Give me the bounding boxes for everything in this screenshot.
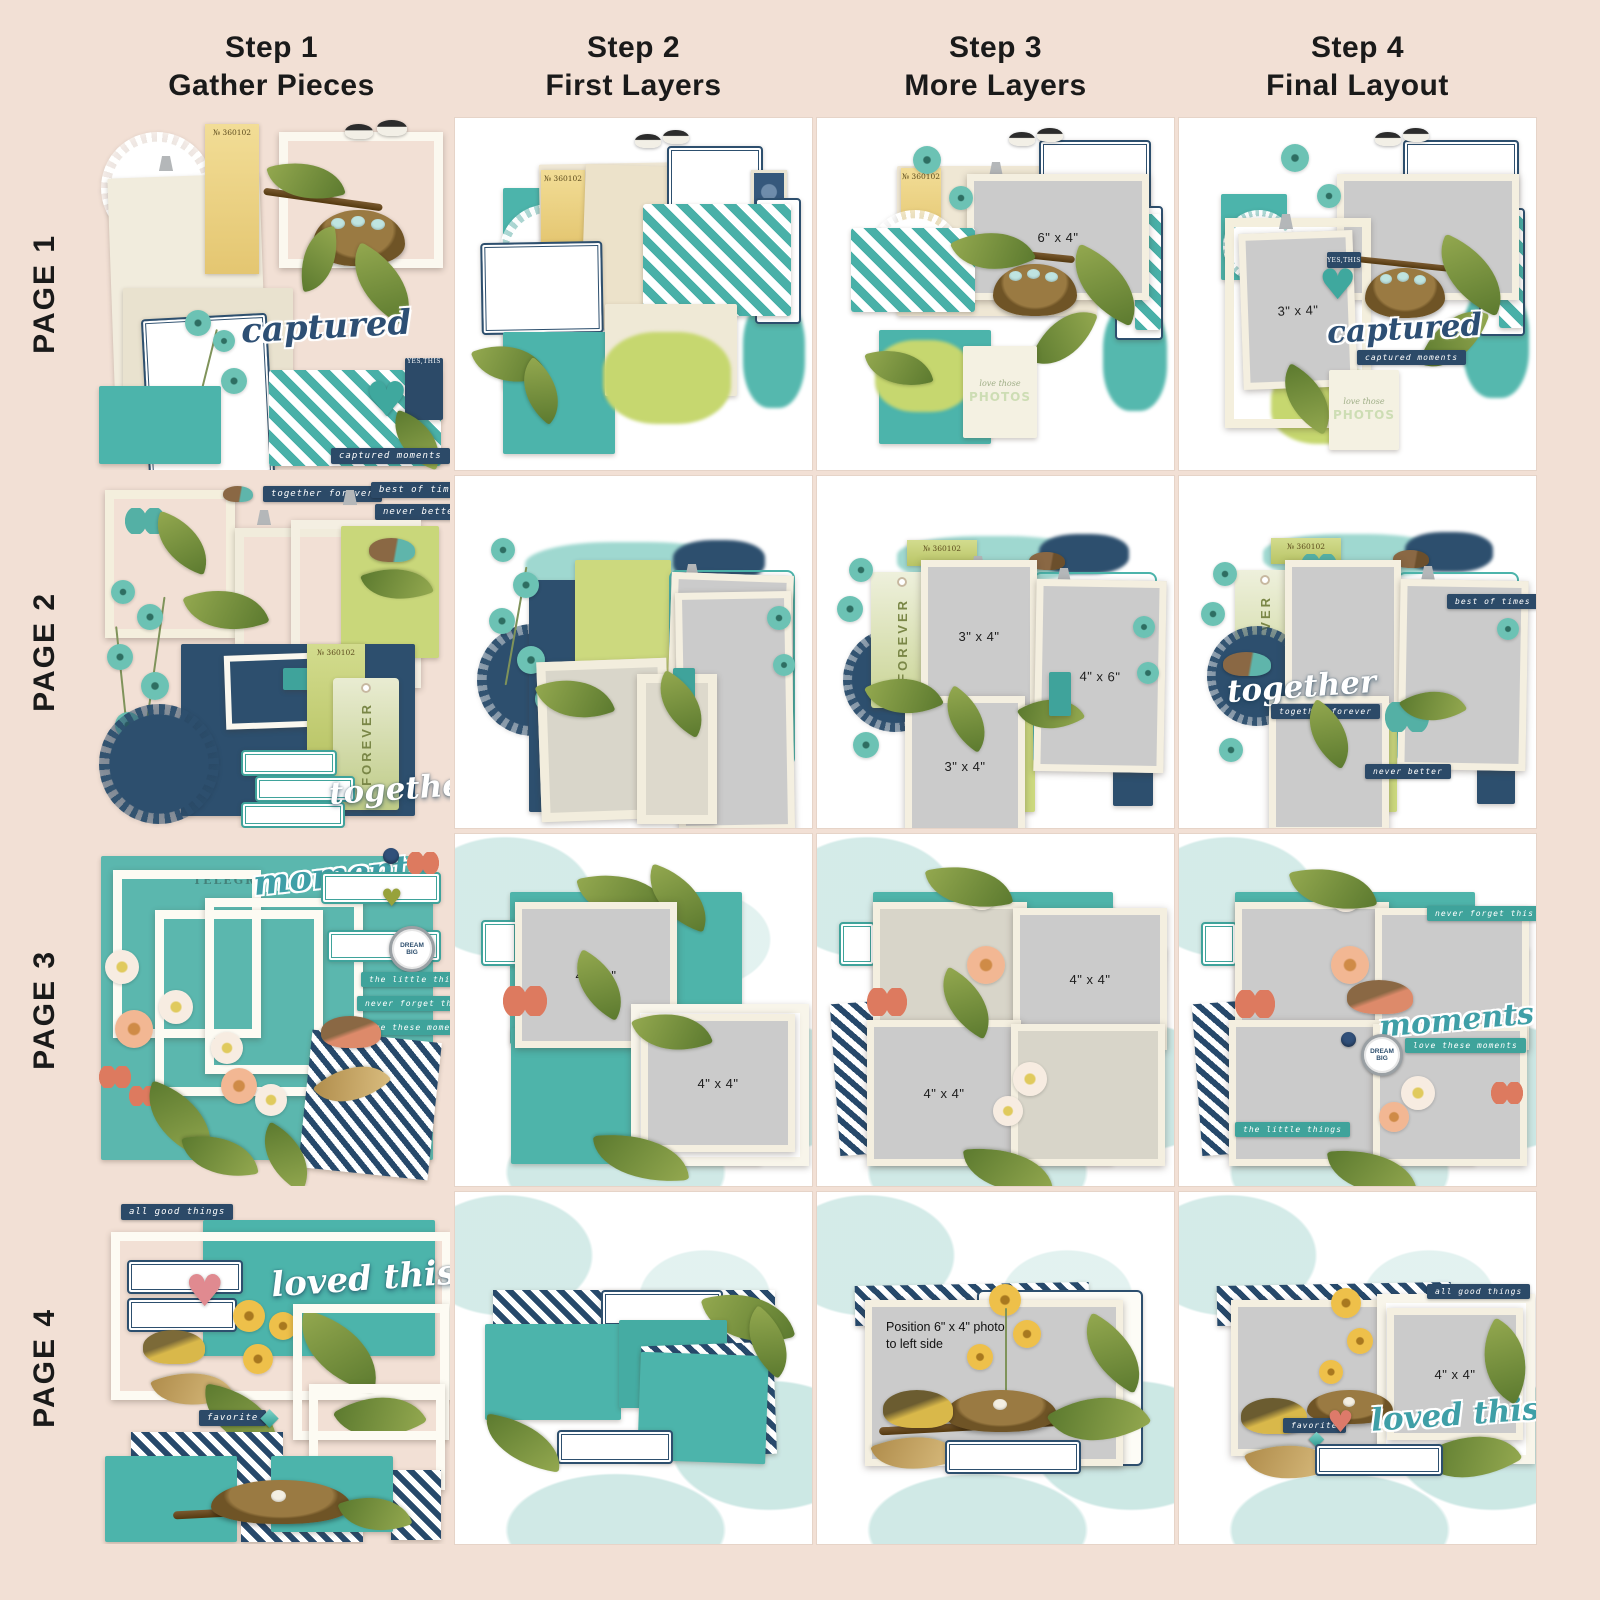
page2-step2-preview	[455, 476, 812, 828]
yellow-flower	[967, 1344, 993, 1370]
teal-poppy	[1201, 602, 1225, 626]
label-chip: love these moments	[1405, 1038, 1526, 1053]
nest-egg	[1397, 272, 1409, 282]
nest-egg	[271, 1490, 286, 1502]
teal-poppy	[513, 572, 539, 598]
songbird	[223, 486, 253, 502]
word-art-captured: captured	[1326, 310, 1483, 349]
row-label-page1: PAGE 1	[2, 118, 88, 470]
white-flower	[105, 950, 139, 984]
teal-poppy	[1133, 616, 1155, 638]
page1-step2-preview: № 360102	[455, 118, 812, 470]
page4-step4-preview: 4" x 4" all good things favorite ♥ loved…	[1179, 1192, 1536, 1544]
teal-flower	[1317, 184, 1341, 208]
heart-teal: ♥	[1319, 264, 1357, 306]
label-chip: never forget this	[1427, 906, 1536, 921]
step-number: Step 3	[949, 29, 1042, 67]
paper-teal	[99, 386, 221, 464]
column-header-step2: Step 2 First Layers	[455, 0, 812, 112]
yellow-flower	[1347, 1328, 1373, 1354]
teal-flower	[213, 330, 235, 352]
chickadee-bird	[1403, 128, 1429, 142]
leaf-accent	[480, 1413, 567, 1472]
column-header-step1: Step 1 Gather Pieces	[93, 0, 450, 112]
label-chip: never better	[1365, 764, 1451, 779]
teal-poppy	[767, 606, 791, 630]
page4-step1-preview: all good things ♥ loved this favorite	[93, 1192, 450, 1544]
white-flower	[993, 1096, 1023, 1126]
label-chip: the little things	[361, 972, 450, 987]
dream-big-charm: DREAM BIG	[1361, 1034, 1403, 1076]
teal-poppy	[111, 580, 135, 604]
step-title: Final Layout	[1266, 67, 1449, 105]
step-number: Step 4	[1311, 29, 1404, 67]
card-photos: love those PHOTOS	[1329, 370, 1399, 450]
grid-corner	[2, 0, 88, 112]
label-plate	[241, 750, 337, 776]
teal-poppy	[141, 672, 169, 700]
yellow-flower	[243, 1344, 273, 1374]
teal-poppy	[1219, 738, 1243, 762]
page1-step1-preview: № 360102 YES,THIS ♥ captured captured mo…	[93, 118, 450, 470]
flower-stem	[1005, 1308, 1007, 1398]
yellow-flower	[1319, 1360, 1343, 1384]
teal-flower	[185, 310, 211, 336]
teal-flower	[949, 186, 973, 210]
binder-clip-icon	[253, 510, 275, 525]
row-label-page4: PAGE 4	[2, 1192, 88, 1544]
page3-step3-preview: 4" x 4" 4" x 4"	[817, 834, 1174, 1186]
butterfly-icon	[867, 988, 907, 1016]
column-header-step4: Step 4 Final Layout	[1179, 0, 1536, 112]
peach-flower	[221, 1068, 257, 1104]
lace-doily-navy	[99, 704, 219, 824]
page1-step3-preview: № 360102 6" x 4" love those PHOTOS	[817, 118, 1174, 470]
label-chip: captured moments	[1357, 350, 1466, 365]
nest-egg	[1045, 272, 1058, 282]
white-flower	[255, 1084, 287, 1116]
label-tab	[481, 920, 519, 966]
label-tab	[839, 922, 875, 966]
peach-flower	[1331, 946, 1369, 984]
teal-flower	[913, 146, 941, 174]
page1-step4-preview: 3" x 4" YES,THIS ♥ captured captured mom…	[1179, 118, 1536, 470]
yellow-flower	[1331, 1288, 1361, 1318]
nest-egg	[1009, 271, 1022, 281]
label-plate	[1315, 1444, 1443, 1476]
label-chip: never better	[375, 504, 450, 520]
white-flower	[211, 1032, 243, 1064]
bird-nest	[211, 1480, 351, 1524]
label-chip: the little things	[1235, 1122, 1350, 1137]
step-number: Step 1	[225, 29, 318, 67]
button-navy	[1341, 1032, 1356, 1047]
page2-step4-preview: № 360102 FOREVER best of times together …	[1179, 476, 1536, 828]
column-header-step3: Step 3 More Layers	[817, 0, 1174, 112]
yellow-bird	[883, 1390, 953, 1428]
yellow-bird	[143, 1330, 205, 1364]
butterfly-icon	[1235, 990, 1275, 1018]
page2-step3-preview: № 360102 FOREVER 3" x 4" 4" x 6" 3" x 4"	[817, 476, 1174, 828]
teal-poppy	[491, 538, 515, 562]
label-plate	[557, 1430, 673, 1464]
ticket-yellow: № 360102	[205, 124, 259, 274]
peach-flower	[115, 1010, 153, 1048]
butterfly-icon	[407, 852, 439, 874]
heart-coral: ♥	[1327, 1408, 1354, 1438]
label-chip: all good things	[1427, 1284, 1530, 1299]
step-title: More Layers	[904, 67, 1086, 105]
nest-egg	[993, 1399, 1007, 1410]
yellow-flower	[233, 1300, 265, 1332]
button-navy	[383, 848, 399, 864]
page4-step3-preview: Position 6" x 4" photo to left side	[817, 1192, 1174, 1544]
row-label-page2: PAGE 2	[2, 476, 88, 828]
nest-egg	[1380, 274, 1392, 284]
peach-flower	[1379, 1102, 1409, 1132]
teal-flower	[1281, 144, 1309, 172]
steps-grid: Step 1 Gather Pieces Step 2 First Layers…	[0, 0, 1600, 1544]
chickadee-bird	[1037, 128, 1063, 142]
striped-paper-navy	[298, 1030, 442, 1181]
photo-frame-empty	[1229, 1020, 1383, 1166]
page3-step2-preview: 4" x 4" 4" x 4"	[455, 834, 812, 1186]
ticket-teal-small	[1049, 672, 1071, 716]
row-label-page3: PAGE 3	[2, 834, 88, 1186]
photo-placeholder-4x4: 4" x 4"	[867, 1020, 1021, 1166]
teal-poppy	[1213, 562, 1237, 586]
ticket-yellow: № 360102	[541, 170, 585, 244]
heart-olive: ♥	[381, 886, 403, 910]
chickadee-bird	[345, 124, 373, 139]
teal-poppy	[837, 596, 863, 622]
white-flower	[1013, 1062, 1047, 1096]
card-navy: YES,THIS	[405, 358, 443, 420]
page3-step1-preview: TELEGRAMM moments ♥ DREAM BIG the little…	[93, 834, 450, 1186]
heart-pink: ♥	[185, 1270, 224, 1314]
paper-teal-small	[283, 668, 309, 690]
nest-egg	[351, 216, 365, 227]
label-tab	[1201, 922, 1237, 966]
chickadee-bird	[377, 120, 407, 136]
page2-step1-preview: together forever best of times never bet…	[93, 476, 450, 828]
label-chip: favorite	[199, 1410, 266, 1426]
dream-big-charm: DREAM BIG	[389, 926, 435, 972]
step-title: First Layers	[545, 67, 721, 105]
songbird-coral	[321, 1016, 381, 1048]
white-flower	[159, 990, 193, 1024]
label-chip: captured moments	[331, 448, 450, 464]
cheat-sheet: Step 1 Gather Pieces Step 2 First Layers…	[0, 0, 1600, 1600]
teal-poppy	[489, 608, 515, 634]
peach-flower	[967, 946, 1005, 984]
lime-paint-smear	[603, 332, 731, 424]
page4-step2-preview	[455, 1192, 812, 1544]
nest-egg	[1414, 275, 1426, 285]
striped-folder	[643, 204, 791, 316]
bird-nest	[945, 1390, 1057, 1432]
butterfly-icon	[1491, 1082, 1523, 1104]
label-plate	[945, 1440, 1081, 1474]
nest-egg	[1027, 269, 1040, 279]
chickadee-bird	[1009, 132, 1035, 146]
card-photos: love those PHOTOS	[963, 346, 1037, 438]
yellow-flower	[1013, 1320, 1041, 1348]
teal-poppy	[773, 654, 795, 676]
teal-poppy	[853, 732, 879, 758]
label-chip: best of times	[371, 482, 450, 498]
journaling-card	[480, 241, 604, 335]
word-art-together: together	[328, 769, 450, 810]
teal-poppy	[137, 604, 163, 630]
page3-step4-preview: never forget this moments love these mom…	[1179, 834, 1536, 1186]
chickadee-bird	[1375, 132, 1401, 146]
butterfly-icon	[503, 986, 547, 1016]
word-art-captured: captured	[240, 306, 412, 349]
paper-teal	[485, 1324, 621, 1420]
teal-poppy	[849, 558, 873, 582]
teal-poppy	[1497, 618, 1519, 640]
photo-placeholder-3x4: 3" x 4"	[921, 560, 1037, 712]
teal-poppy	[1137, 662, 1159, 684]
step-number: Step 2	[587, 29, 680, 67]
white-flower	[1401, 1076, 1435, 1110]
songbird	[369, 538, 415, 562]
label-chip: never forget this	[357, 996, 450, 1011]
chickadee-bird	[663, 130, 689, 144]
teal-flower	[221, 368, 247, 394]
teal-poppy	[107, 644, 133, 670]
label-chip: together forever	[263, 486, 382, 502]
step-title: Gather Pieces	[168, 67, 375, 105]
butterfly-icon	[99, 1066, 131, 1088]
nest-egg	[371, 219, 385, 230]
label-chip: all good things	[121, 1204, 233, 1220]
label-chip: best of times	[1447, 594, 1536, 609]
chickadee-bird	[635, 134, 661, 148]
